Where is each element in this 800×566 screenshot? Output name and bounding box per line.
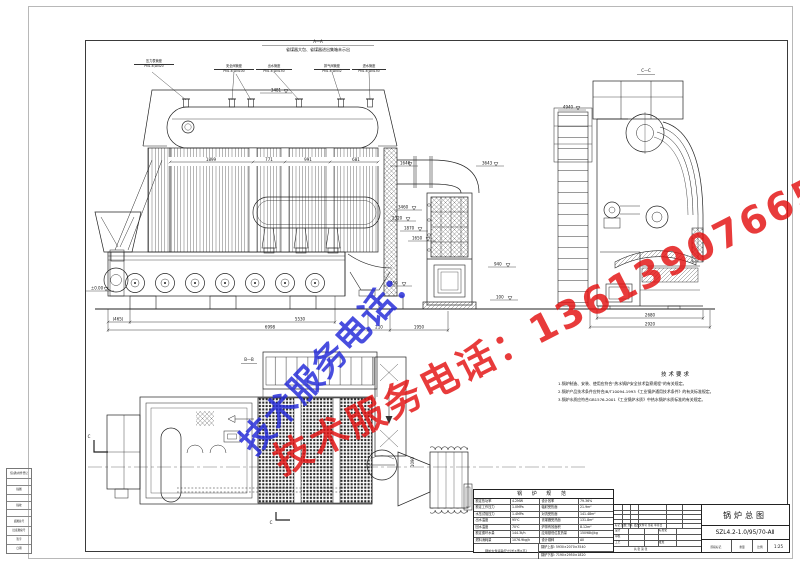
nozzle-spec: PN1.6;DN150 (256, 70, 292, 74)
svg-text:991: 991 (304, 157, 312, 162)
spec-label: 回水温度 (474, 525, 511, 530)
svg-text:C: C (270, 520, 273, 525)
svg-text:C—C: C—C (641, 68, 651, 73)
approve-label: 批准 (659, 541, 664, 544)
drawing-linework: (465) 5530 6998 210 1950 1899 771 991 68… (0, 0, 800, 566)
technical-note-line: 3.锅炉水质应符合GB1576-2001《工业锅炉水质》中热水锅炉水质标准的有关… (558, 396, 794, 403)
nozzle-label: 排气阀管座 PN1.6;DN32 (314, 65, 350, 74)
sign-label: 审核 (615, 535, 620, 538)
title-block-revision-zone: 标记 处数 分区 更改文件号 签名 年月日 设计 审核 工艺 标准化 批准 共 … (614, 505, 702, 552)
svg-text:1640: 1640 (400, 161, 411, 166)
svg-text:6998: 6998 (265, 325, 276, 330)
margin-block-empty (7, 495, 31, 502)
spec-value: 8.12m² (579, 525, 614, 530)
nozzle-label: 安全阀管座 PN1.6;DN100 (214, 65, 254, 74)
spec-label: 对流受热面 (540, 512, 579, 517)
spec-label: 设计煤种 (540, 538, 579, 543)
nozzle-spec: PN1.6;DN32 (314, 70, 350, 74)
svg-text:210: 210 (375, 325, 383, 330)
spec-value: 15098kJ/kg (579, 531, 614, 536)
spec-label: 额定热功率 (474, 499, 511, 504)
svg-text:2680: 2680 (645, 313, 656, 318)
spec-label: 炉排有效面积 (540, 525, 579, 530)
margin-block: 借(通)用件登记 (7, 469, 31, 479)
spec-value: AⅡ (579, 538, 614, 543)
spec-label: 出水温度 (474, 518, 511, 523)
spec-label: 省煤器受热面 (540, 518, 579, 523)
spec-value: 131.8m² (579, 518, 614, 523)
nozzle-label: 压力表管座 PN1.6;DN20 (134, 60, 174, 69)
boiler-drawing-sheet: { "watermark": { "label": "技术服务电话：", "nu… (0, 0, 800, 566)
margin-block: 描图 (7, 486, 31, 494)
svg-text:100: 100 (496, 295, 504, 300)
title-block-name-zone: 锅炉总图 SZL4.2-1.0/95/70-AⅡ 阶段标记 重量 比例 1:25 (701, 505, 789, 552)
svg-text:A—A: A—A (313, 39, 323, 44)
svg-text:940: 940 (494, 262, 502, 267)
spec-transport-row: 锅炉大件运输尺寸(长×宽×高) 锅炉上部: 5930×2070×3540 锅炉下… (474, 544, 613, 559)
spec-label: 设计效率 (540, 499, 579, 504)
spec-value: 70℃ (511, 525, 541, 530)
svg-text:4940: 4940 (563, 105, 574, 110)
margin-block-empty (7, 479, 31, 486)
spec-value: 79.36% (579, 499, 614, 504)
sign-label: 工艺 (615, 541, 620, 544)
sheet-info: 共 张 第 张 (634, 548, 647, 551)
svg-text:2320: 2320 (392, 216, 403, 221)
spec-label: 额定循环水量 (474, 531, 511, 536)
spec-value: 21.9m² (579, 505, 614, 510)
svg-text:771: 771 (265, 157, 273, 162)
svg-text:1950: 1950 (414, 325, 425, 330)
revision-header: 标记 处数 分区 更改文件号 签名 年月日 (615, 524, 662, 527)
svg-text:681: 681 (352, 157, 360, 162)
svg-text:±0.00: ±0.00 (91, 285, 104, 290)
margin-block: 旧底图总号 (7, 527, 31, 536)
drawing-title: 锅炉总图 (701, 505, 789, 526)
boiler-spec-table: 锅 炉 规 范 额定热功率 4.2MW 设计效率 79.36% 额定工作压力 1… (473, 489, 614, 553)
svg-text:省煤器大包、省煤器进出集箱未示出: 省煤器大包、省煤器进出集箱未示出 (286, 46, 350, 52)
svg-text:1650: 1650 (412, 236, 423, 241)
svg-text:3460: 3460 (398, 205, 409, 210)
boiler-model: SZL4.2-1.0/95/70-AⅡ (701, 526, 789, 540)
spec-transport-label: 锅炉大件运输尺寸(长×宽×高) (474, 544, 539, 559)
svg-text:1870: 1870 (404, 226, 415, 231)
svg-text:C: C (88, 434, 91, 439)
spec-value: 4.2MW (511, 499, 541, 504)
weight-label: 重量 (732, 540, 753, 553)
view-cc-section: C—C (548, 68, 715, 329)
scale-value: 1:25 (768, 540, 789, 553)
spec-value: 1076.9kg/h (511, 538, 541, 543)
svg-text:2920: 2920 (645, 322, 656, 327)
std-label: 标准化 (659, 529, 667, 532)
nozzle-label: 进水管座 PN1.6;DN150 (352, 65, 386, 74)
margin-block: 日期 (7, 545, 31, 553)
svg-text:3643: 3643 (482, 161, 493, 166)
svg-text:1899: 1899 (206, 157, 217, 162)
margin-signature-blocks: 借(通)用件登记 描图 描校 底图总号 旧底图总号 签字 日期 (6, 468, 32, 554)
spec-value: 1.0MPa (511, 505, 541, 510)
technical-note-line: 2.锅炉产品技术条件应符合JB/T10094-1993《工业锅炉通用技术条件》的… (558, 388, 794, 395)
technical-notes: 技术要求 1.锅炉制造、安装、使用应符合“热水锅炉安全技术监察规程”的有关规定。… (558, 372, 794, 403)
spec-value: 1.4MPa (511, 512, 541, 517)
svg-text:5530: 5530 (295, 317, 306, 322)
svg-text:1090: 1090 (410, 456, 415, 467)
spec-label: 辐射受热面 (540, 505, 579, 510)
margin-block: 签字 (7, 536, 31, 545)
spec-label: 燃料消耗量 (474, 538, 511, 543)
nozzle-label: 出水管座 PN1.6;DN150 (256, 65, 292, 74)
spec-value: 144.3t/h (511, 531, 541, 536)
margin-block: 描校 (7, 502, 31, 510)
svg-text:(465): (465) (113, 317, 124, 322)
spec-transport-upper: 锅炉上部: 5930×2070×3540 (539, 544, 613, 552)
svg-text:450: 450 (390, 281, 398, 286)
margin-block-empty (7, 510, 31, 517)
technical-notes-title: 技术要求 (558, 372, 794, 379)
spec-label: 水压试验压力 (474, 512, 511, 517)
nozzle-spec: PN1.6;DN20 (134, 65, 174, 69)
stage-label: 阶段标记 (701, 540, 732, 553)
scale-label: 比例 (753, 540, 768, 553)
spec-value: 141.48m² (579, 512, 614, 517)
spec-label: 额定工作压力 (474, 505, 511, 510)
sign-label: 设计 (615, 529, 620, 532)
nozzle-spec: PN1.6;DN100 (214, 70, 254, 74)
view-main-section: (465) 5530 6998 210 1950 1899 771 991 68… (86, 39, 548, 332)
spec-value: 95℃ (511, 518, 541, 523)
technical-note-line: 1.锅炉制造、安装、使用应符合“热水锅炉安全技术监察规程”的有关规定。 (558, 380, 794, 387)
svg-text:3481: 3481 (271, 88, 282, 93)
spec-table-title: 锅 炉 规 范 (474, 490, 613, 499)
nozzle-spec: PN1.6;DN150 (352, 70, 386, 74)
margin-block: 底图总号 (7, 517, 31, 526)
svg-text:B—B: B—B (244, 357, 254, 362)
title-block: 标记 处数 分区 更改文件号 签名 年月日 设计 审核 工艺 标准化 批准 共 … (613, 504, 790, 553)
spec-transport-lower: 锅炉下部: 7190×2950×1820 (539, 552, 613, 559)
spec-label: 应用基低位发热量 (540, 531, 579, 536)
